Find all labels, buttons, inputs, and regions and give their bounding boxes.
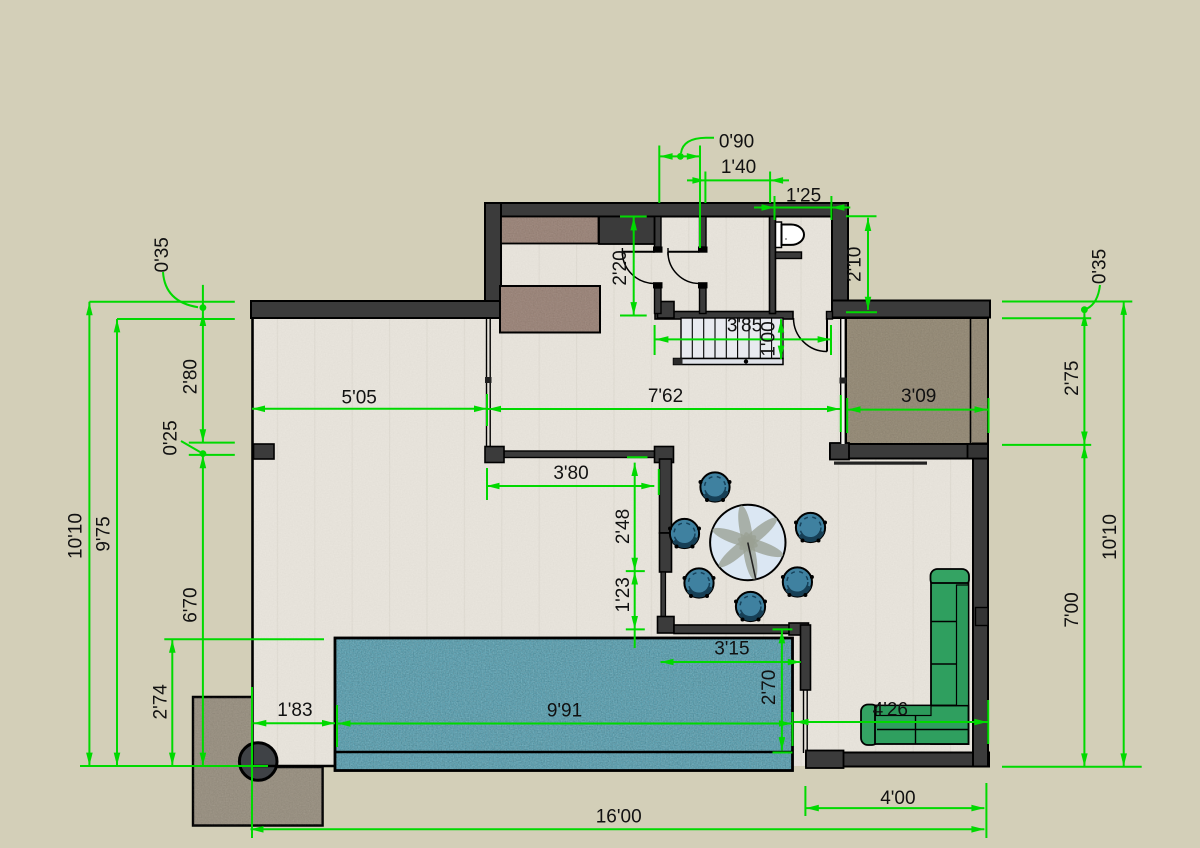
svg-text:6'70: 6'70	[181, 587, 202, 622]
svg-text:0'25: 0'25	[161, 420, 182, 455]
svg-text:7'62: 7'62	[648, 386, 683, 407]
svg-text:2'75: 2'75	[1062, 361, 1083, 396]
svg-text:5'05: 5'05	[342, 388, 377, 409]
svg-text:1'25: 1'25	[786, 186, 821, 207]
svg-text:0'35: 0'35	[1089, 249, 1110, 284]
svg-text:1'23: 1'23	[613, 577, 634, 612]
svg-text:2'70: 2'70	[759, 670, 780, 705]
svg-text:4'26: 4'26	[873, 700, 908, 721]
svg-text:2'10: 2'10	[845, 247, 866, 282]
svg-text:10'10: 10'10	[1100, 514, 1121, 560]
svg-text:2'80: 2'80	[181, 359, 202, 394]
svg-text:9'91: 9'91	[547, 701, 582, 722]
svg-text:1'40: 1'40	[721, 157, 756, 178]
svg-text:10'10: 10'10	[65, 513, 86, 559]
svg-text:7'00: 7'00	[1062, 592, 1083, 627]
svg-text:2'20: 2'20	[610, 250, 631, 285]
svg-text:1'83: 1'83	[277, 700, 312, 721]
svg-text:3'80: 3'80	[553, 463, 588, 484]
svg-text:1'00: 1'00	[759, 321, 780, 356]
svg-text:4'00: 4'00	[880, 788, 915, 809]
svg-text:2'48: 2'48	[613, 509, 634, 544]
svg-text:2'74: 2'74	[151, 684, 172, 720]
svg-text:16'00: 16'00	[596, 807, 642, 828]
svg-text:3'09: 3'09	[901, 386, 936, 407]
svg-text:9'75: 9'75	[94, 516, 115, 551]
svg-text:3'85: 3'85	[727, 316, 762, 337]
svg-text:0'90: 0'90	[719, 132, 754, 153]
svg-text:3'15: 3'15	[714, 639, 749, 660]
svg-text:0'35: 0'35	[152, 237, 173, 272]
